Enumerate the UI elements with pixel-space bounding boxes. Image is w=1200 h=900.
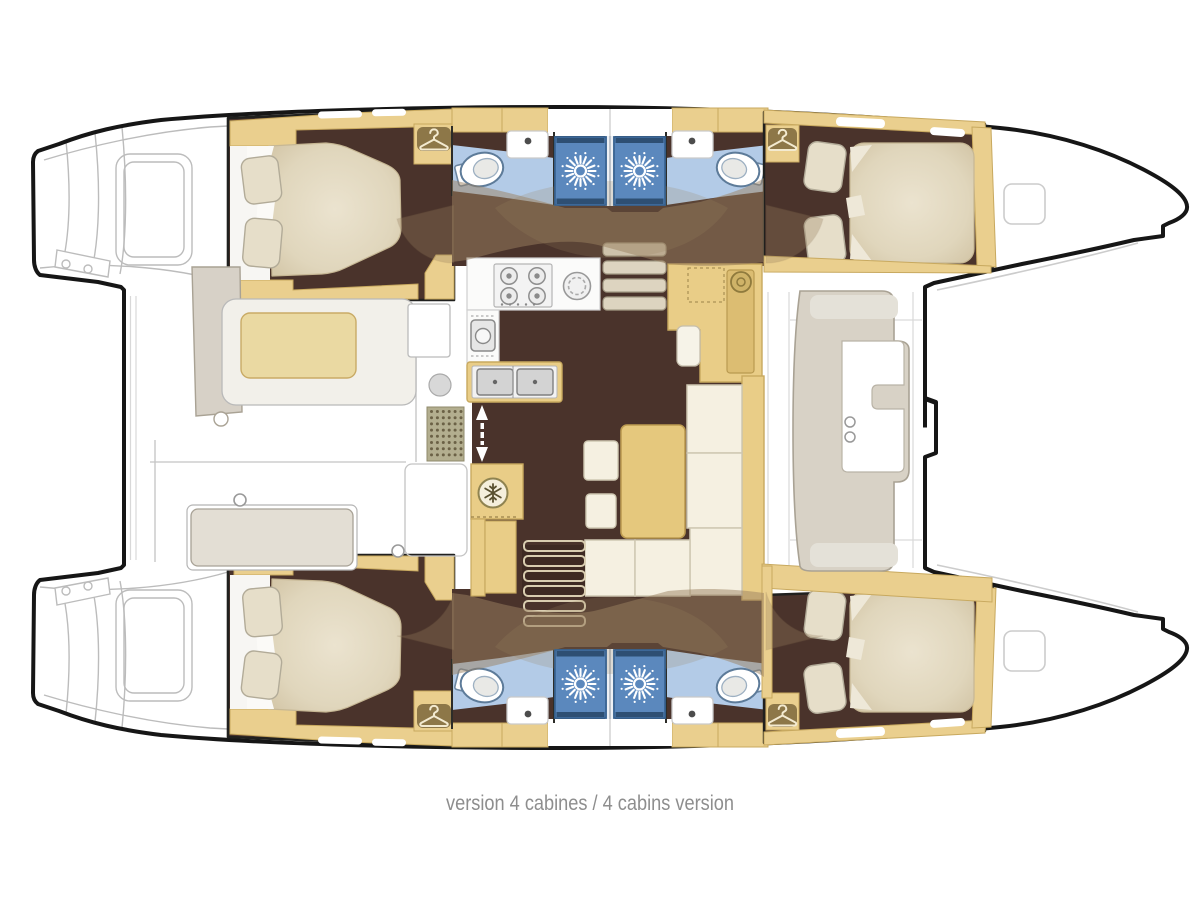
- svg-text:version 4 cabines / 4 cabins v: version 4 cabines / 4 cabins version: [446, 792, 734, 815]
